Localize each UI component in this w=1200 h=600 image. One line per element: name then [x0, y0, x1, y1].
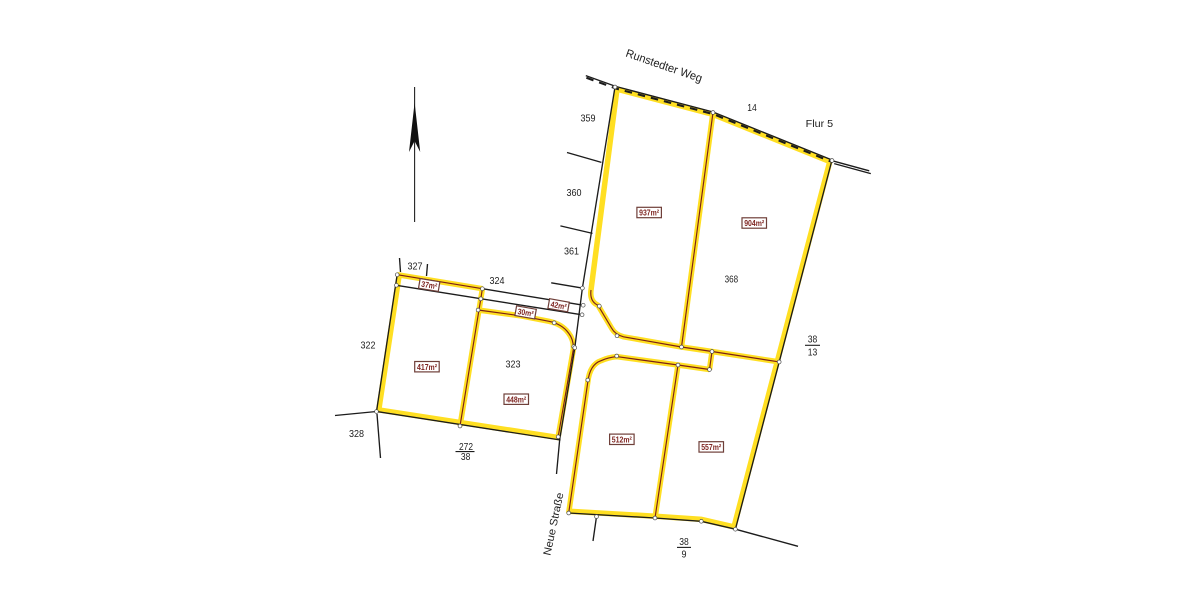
svg-text:904m²: 904m²: [744, 219, 764, 228]
svg-text:360: 360: [567, 188, 582, 199]
svg-text:38: 38: [679, 537, 689, 548]
svg-text:9: 9: [682, 550, 687, 561]
svg-text:417m²: 417m²: [417, 363, 437, 372]
svg-text:448m²: 448m²: [506, 395, 526, 404]
svg-text:38: 38: [808, 335, 818, 346]
svg-text:Flur 5: Flur 5: [806, 119, 834, 130]
svg-text:Runstedter Weg: Runstedter Weg: [624, 48, 704, 85]
svg-text:361: 361: [564, 247, 579, 258]
svg-text:13: 13: [808, 348, 818, 359]
svg-text:328: 328: [349, 429, 364, 440]
svg-text:512m²: 512m²: [612, 435, 632, 444]
svg-text:557m²: 557m²: [701, 443, 721, 452]
svg-text:322: 322: [361, 341, 376, 352]
svg-text:14: 14: [747, 103, 757, 114]
svg-text:368: 368: [725, 275, 739, 286]
svg-text:359: 359: [581, 114, 596, 125]
svg-text:327: 327: [408, 262, 423, 273]
svg-text:38: 38: [461, 452, 471, 463]
svg-text:324: 324: [490, 276, 505, 287]
svg-text:937m²: 937m²: [639, 209, 659, 218]
svg-text:Neue Straße: Neue Straße: [541, 492, 566, 557]
svg-text:323: 323: [506, 360, 521, 371]
